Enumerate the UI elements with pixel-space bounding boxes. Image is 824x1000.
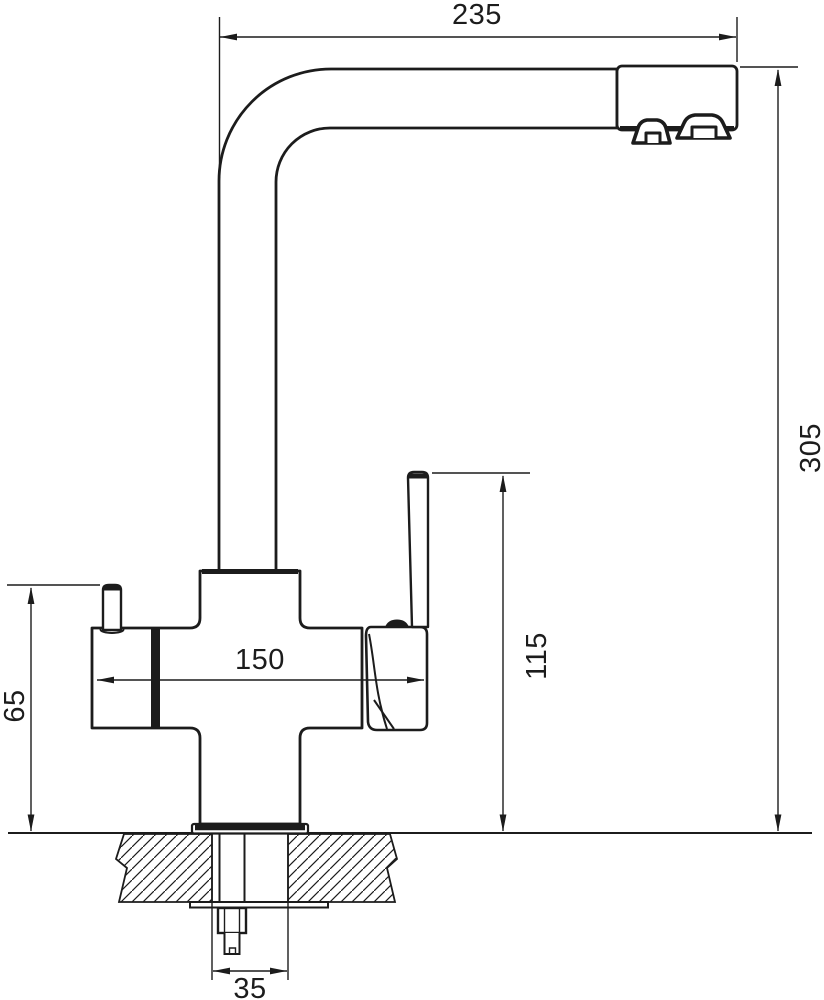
lever-handle — [408, 472, 428, 627]
dimension-label-side-handle-height: 65 — [0, 689, 31, 722]
aerator-main-notch — [692, 127, 716, 138]
mixer-body-cross — [92, 571, 362, 824]
dimension-label-overall-height: 305 — [795, 423, 824, 473]
countertop-hatch-right — [288, 834, 397, 902]
faucet-technical-drawing: 235 305 150 115 — [0, 0, 824, 1000]
arrowhead — [28, 587, 35, 604]
technical-drawing-canvas: 235 305 150 115 — [0, 0, 824, 1000]
dimension-lever-height: 115 — [432, 473, 553, 832]
lever-joint — [385, 620, 409, 628]
arrowhead — [500, 815, 507, 832]
arrowhead — [28, 815, 35, 832]
arrowhead — [500, 475, 507, 492]
countertop-section — [8, 833, 812, 954]
dimension-overall-height: 305 — [740, 67, 824, 832]
faucet-body — [92, 66, 737, 834]
dimension-label-lever-height: 115 — [521, 632, 553, 680]
arrowhead — [213, 968, 230, 975]
aerator-filtered-notch — [646, 133, 660, 143]
arrowhead — [719, 34, 736, 41]
arrowhead — [775, 69, 782, 86]
arrowhead — [220, 34, 237, 41]
side-handle — [103, 585, 121, 630]
dimension-side-handle-height: 65 — [0, 585, 100, 832]
dimension-label-spout-reach: 235 — [452, 0, 502, 31]
dimension-label-body-width: 150 — [235, 644, 285, 676]
dimension-label-mounting-stem: 35 — [233, 973, 266, 1000]
arrowhead — [270, 968, 287, 975]
arrowhead — [775, 815, 782, 832]
mounting-stud-tip — [225, 933, 240, 954]
mounting-washer — [190, 902, 328, 908]
body-seam — [151, 628, 160, 728]
countertop-hatch-left — [116, 834, 212, 902]
mounting-nut — [218, 908, 246, 933]
